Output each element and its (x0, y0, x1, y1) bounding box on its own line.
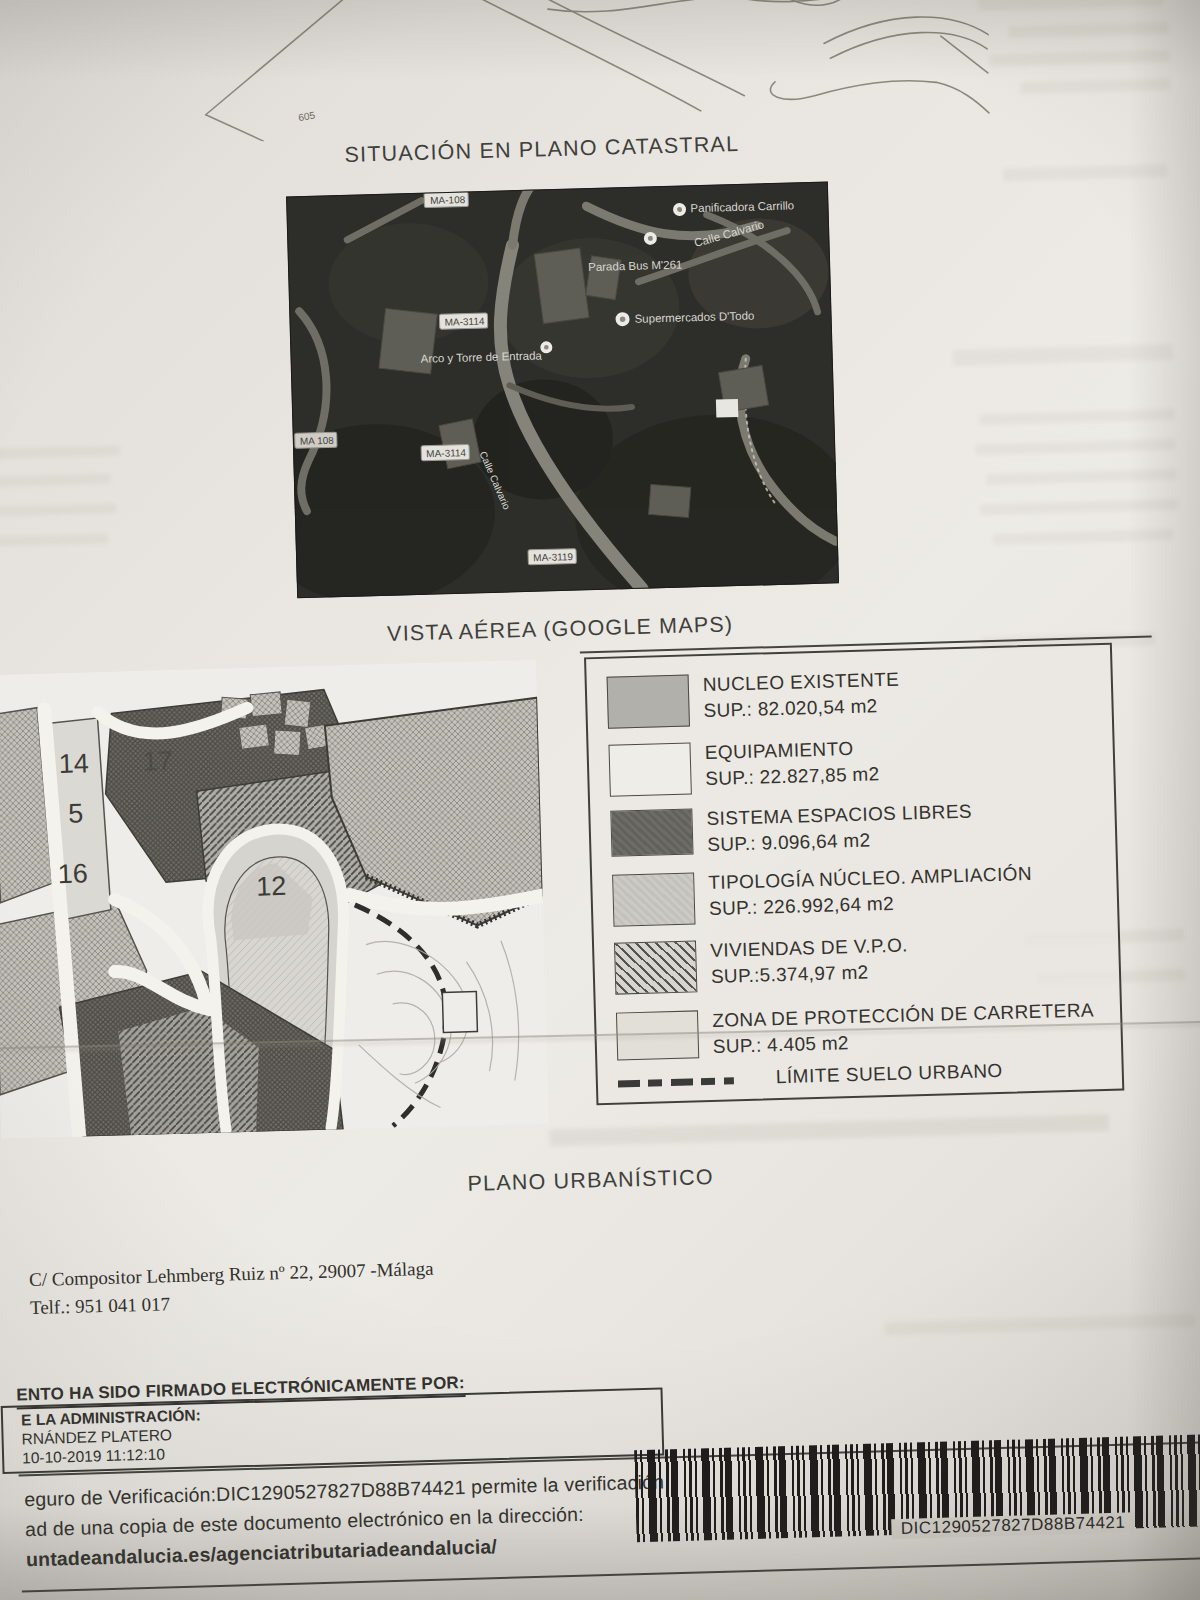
legend-swatch-equipamiento (608, 742, 691, 796)
legend-item: TIPOLOGÍA NÚCLEO. AMPLIACIÓN SUP.: 226.9… (592, 861, 1117, 936)
limite-dashed-line-icon (618, 1077, 734, 1087)
legend-item-name: NUCLEO EXISTENTE (703, 669, 900, 696)
zone-number: 14 (58, 748, 89, 779)
zone-number: 12 (256, 871, 287, 902)
legend-item-sup: SUP.: 9.096,64 m2 (707, 829, 871, 856)
zone-number: 16 (57, 858, 88, 889)
scanned-document-page: { "page": { "title_catastral": "SITUACIÓ… (0, 0, 1200, 1600)
bleed-through-mark (979, 409, 1174, 425)
cadastral-plan-fragment: 605 (128, 0, 992, 145)
legend-swatch-espacios-libres (610, 808, 693, 856)
legend-item-sup: SUP.:5.374,97 m2 (711, 962, 869, 988)
caption-plano-urbanistico: PLANO URBANÍSTICO (11, 1152, 1171, 1209)
bleed-through-mark (989, 50, 1169, 67)
legend-item-name: VIVIENDAS DE V.P.O. (710, 934, 908, 962)
bleed-through-mark (1009, 22, 1169, 38)
road-badge: MA 108 (300, 435, 335, 447)
legend-item: EQUIPAMIENTO SUP.: 22.827,85 m2 (588, 731, 1113, 806)
signature-date: 10-10-2019 11:12:10 (22, 1445, 165, 1467)
legend-item-sup: SUP.: 82.020,54 m2 (703, 695, 878, 722)
bleed-through-mark (978, 0, 1163, 11)
address-block: C/ Compositor Lehmberg Ruiz nº 22, 29007… (29, 1255, 435, 1322)
bleed-through-mark (885, 1314, 1195, 1336)
legend-item-sup: SUP.: 4.405 m2 (713, 1032, 849, 1058)
zone-number: 5 (68, 798, 84, 828)
road-badge: MA-3114 (426, 447, 467, 459)
legend-swatch-zona-proteccion (616, 1010, 699, 1060)
legend-item-name: SISTEMA ESPACIOS LIBRES (706, 801, 972, 830)
drawing-label: 605 (297, 109, 316, 123)
bleed-through-mark (980, 499, 1178, 516)
bleed-through-mark (986, 469, 1176, 485)
urban-planning-map: 14 17 5 16 12 (0, 660, 549, 1139)
bleed-through-mark (975, 439, 1175, 456)
document-sheet: 605 SITUACIÓN EN PLANO CATASTRAL (0, 0, 1200, 1600)
aerial-photo: Panificadora Carrillo Parada Bus M'261 C… (286, 181, 839, 598)
legend-item-name: EQUIPAMIENTO (704, 738, 853, 764)
bright-building (716, 399, 738, 418)
road-badge: MA-108 (430, 194, 466, 206)
bleed-through-mark (1003, 164, 1168, 182)
bleed-through-mark (993, 529, 1173, 545)
bleed-through-mark (0, 474, 111, 487)
legend-box: NUCLEO EXISTENTE SUP.: 82.020,54 m2 EQUI… (584, 643, 1124, 1106)
road-badge: MA-3114 (444, 316, 485, 328)
bleed-through-mark (0, 445, 120, 459)
zone-number: 17 (142, 746, 173, 777)
legend-swatch-viviendas-vpo (614, 940, 697, 994)
legend-swatch-tipologia-nucleo (612, 872, 695, 926)
legend-item-name: LÍMITE SUELO URBANO (776, 1060, 1004, 1088)
legend-item-sup: SUP.: 22.827,85 m2 (705, 763, 880, 790)
barcode: DIC1290527827D88B74421 (634, 1431, 1200, 1546)
legend-item: NUCLEO EXISTENTE SUP.: 82.020,54 m2 (587, 663, 1112, 738)
legend-item-name: TIPOLOGÍA NÚCLEO. AMPLIACIÓN (708, 863, 1032, 894)
verification-url: untadeandalucia.es/agenciatributariadean… (26, 1535, 498, 1571)
bleed-through-mark (953, 344, 1173, 366)
legend-item: SISTEMA ESPACIOS LIBRES SUP.: 9.096,64 m… (590, 797, 1115, 872)
legend-item: VIVIENDAS DE V.P.O. SUP.:5.374,97 m2 (594, 929, 1119, 1004)
signature-role: E LA ADMINISTRACIÓN: (21, 1406, 201, 1429)
bleed-through-mark (549, 1114, 1109, 1147)
legend-item-sup: SUP.: 226.992,64 m2 (709, 893, 894, 920)
road-badge: MA-3119 (533, 551, 574, 563)
bleed-through-mark (0, 503, 117, 516)
bleed-through-mark (0, 534, 108, 547)
legend-swatch-nucleo-existente (607, 674, 690, 728)
bleed-through-mark (1020, 78, 1170, 94)
